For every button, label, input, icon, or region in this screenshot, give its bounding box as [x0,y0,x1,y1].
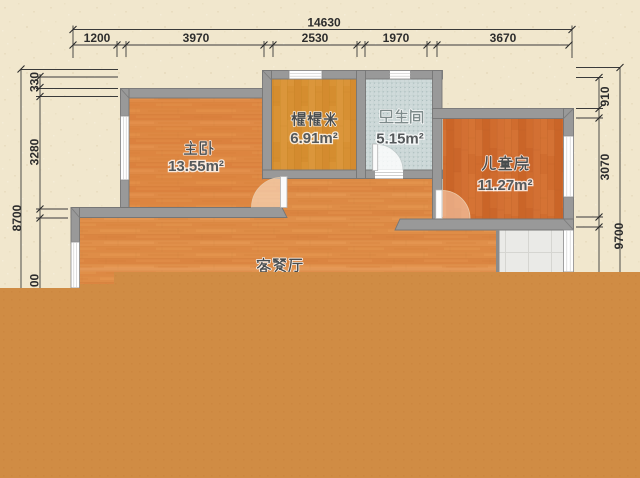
svg-text:3970: 3970 [183,31,210,45]
svg-text:3670: 3670 [490,31,517,45]
svg-text:14630: 14630 [307,16,341,30]
svg-text:00: 00 [28,274,42,288]
svg-text:330: 330 [28,72,42,92]
svg-text:8700: 8700 [10,204,24,231]
svg-text:11.27m²: 11.27m² [477,177,532,194]
svg-text:2530: 2530 [302,31,329,45]
svg-text:13.55m²: 13.55m² [168,158,224,175]
svg-text:5.15m²: 5.15m² [376,131,424,148]
svg-text:1970: 1970 [383,31,410,45]
svg-text:910: 910 [598,86,612,106]
svg-text:1200: 1200 [84,31,111,45]
svg-text:9700: 9700 [612,222,626,249]
svg-text:3070: 3070 [598,153,612,180]
svg-text:6.91m²: 6.91m² [290,130,338,147]
svg-text:3280: 3280 [28,138,42,165]
